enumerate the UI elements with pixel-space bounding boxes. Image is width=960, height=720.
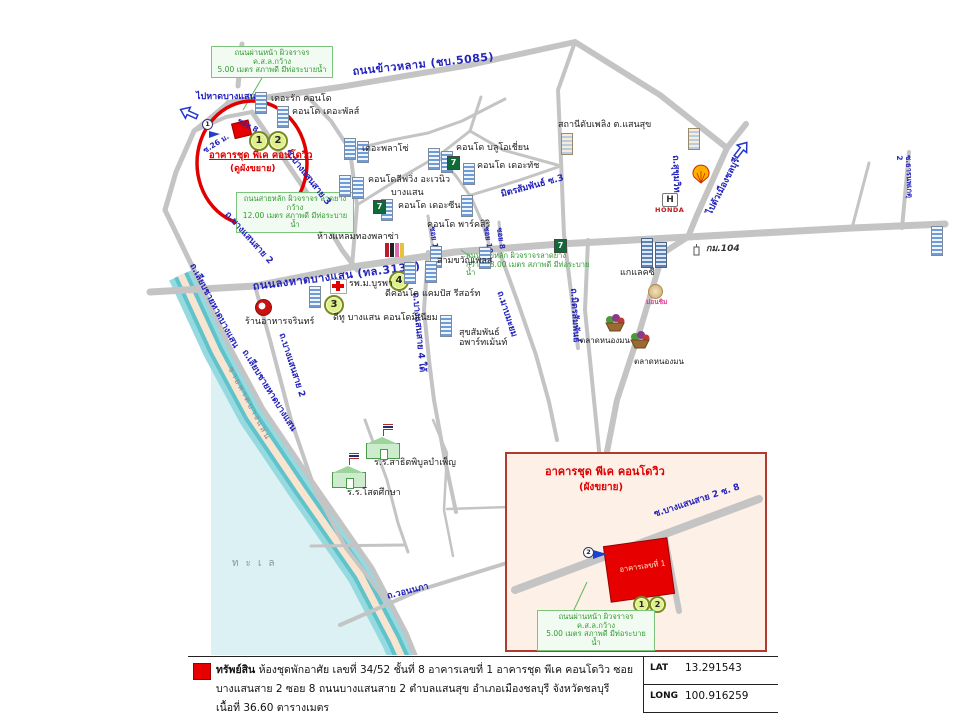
place-blue-ocean: คอนโด บลูโอเชี่ยน — [456, 143, 529, 153]
photo-marker-1: 1 — [249, 131, 269, 151]
sea-label: ทะเล — [232, 558, 282, 570]
honda-logo-icon: H — [662, 193, 678, 207]
condo-tower-icon — [344, 138, 356, 160]
place-galaxy: แกแลคซี — [620, 268, 655, 278]
galaxy-tower-icon — [655, 242, 667, 268]
place-the-zen: คอนโด เดอะซีน — [398, 201, 461, 211]
seven-eleven-icon: 7 — [373, 200, 386, 214]
apartment-icon — [440, 315, 452, 337]
inset-subtitle: (ผังขยาย) — [579, 482, 623, 494]
galaxy-tower-icon — [641, 238, 653, 268]
place-jarin: ร้านอาหารจรินทร์ — [245, 317, 314, 327]
road-label-sukhumvit: ถ.สุขุมวิท — [670, 155, 682, 193]
condo-tower-icon — [428, 148, 440, 170]
place-nong-mon-2: ตลาดหนองมน — [634, 357, 684, 366]
photo-marker-2: 2 — [268, 131, 288, 151]
condo-tower-icon — [309, 286, 321, 308]
inset-title: อาคารชุด พีเค คอนโดวิว — [545, 466, 665, 479]
place-hospital: รพ.ม.บูรพา — [349, 279, 393, 289]
place-the-rak: เดอะรัก คอนโด — [271, 94, 332, 104]
arrow-to-beach-icon — [178, 104, 199, 122]
lat-value: 13.291543 — [685, 662, 742, 674]
thai-flag-icon — [383, 424, 393, 430]
laem-thong-mall-icon — [385, 243, 404, 257]
school-house-icon — [332, 472, 366, 488]
camera-point-2: 2 — [583, 547, 594, 558]
highlight-title: อาคารชุด พีเค คอนโดวิว — [209, 151, 312, 162]
place-d2-bangsaen: ดีทู บางแสน คอนโดมิเนียม — [333, 313, 438, 323]
condo-tower-icon — [425, 261, 437, 283]
place-sam-kwan: สามขวัญเพลส — [437, 256, 492, 266]
condo-tower-icon — [404, 262, 416, 284]
fire-station-building-icon — [561, 133, 573, 155]
fruit-basket-icon — [629, 331, 651, 349]
legend-property-swatch — [193, 663, 211, 680]
place-sot-school: ร.ร.โสตศึกษา — [347, 488, 401, 498]
jarin-restaurant-logo-icon — [255, 299, 272, 316]
place-suk-samphan: สุขสัมพันธ์ อพาร์ทเม้นท์ — [459, 328, 507, 349]
highlight-subtitle: (ดูผังขยาย) — [230, 164, 276, 174]
legend-text: ทรัพย์สิน ห้องชุดพักอาศัย เลขที่ 34/52 ช… — [216, 661, 636, 718]
place-the-pulse: คอนโด เดอะพัลส์ — [292, 107, 359, 117]
place-living-avenue: คอนโดลีฟวิ่ง อะเวนิว — [368, 175, 450, 185]
building-icon — [931, 226, 943, 256]
inset-enlarged-plan: อาคารชุด พีเค คอนโดวิว (ผังขยาย) ซ.บางแส… — [505, 452, 767, 652]
place-mon-chim: ม่อนชิม — [646, 299, 667, 306]
place-park-siri: คอนโด พาร์คสิริ — [427, 220, 490, 230]
photo-marker-3: 3 — [324, 295, 344, 315]
condo-tower-icon — [339, 175, 351, 197]
long-label: LONG — [650, 691, 678, 701]
km-milestone-icon — [694, 244, 699, 255]
condo-tower-icon — [461, 195, 473, 217]
road-label-to-beach: ไปหาดบางแสน — [196, 92, 256, 102]
shell-station-icon — [693, 165, 709, 183]
legend: ทรัพย์สิน ห้องชุดพักอาศัย เลขที่ 34/52 ช… — [0, 655, 960, 720]
condo-tower-icon — [352, 177, 364, 199]
note-front-road: ถนนผ่านหน้า ผิวจราจร ค.ส.ล.กว้าง 5.00 เม… — [211, 46, 333, 78]
building-icon — [688, 128, 700, 150]
place-the-plazo: เดอะพลาโซ่ — [362, 144, 409, 154]
property-location-map: ถนนผ่านหน้า ผิวจราจร ค.ส.ล.กว้าง 5.00 เม… — [0, 0, 960, 720]
road-label-than-nop-ket: ซ.ธารนพเกตุ 2 — [895, 155, 914, 204]
school-house-icon — [366, 443, 400, 459]
seven-eleven-icon: 7 — [447, 156, 460, 170]
seven-eleven-icon: 7 — [554, 239, 567, 253]
place-laem-thong: ห้างแหลมทองพลาซ่า — [317, 232, 399, 242]
note-main-road-12m: ถนนสายหลัก ผิวจราจร ลาดยาง กว้าง 12.00 เ… — [236, 192, 354, 233]
thai-flag-icon — [349, 453, 359, 459]
place-dcondo: ดีคอนโด แคมปัส รีสอร์ท — [385, 289, 480, 299]
inset-note-front-road: ถนนผ่านหน้า ผิวจราจร ค.ส.ล.กว้าง 5.00 เม… — [537, 610, 655, 651]
hospital-cross-icon — [330, 279, 347, 294]
place-satit-school: ร.ร.สาธิตพิบูลบำเพ็ญ — [374, 458, 456, 468]
fruit-basket-icon — [604, 314, 626, 332]
honda-label: HONDA — [655, 207, 684, 214]
km104-label: กม.104 — [706, 244, 740, 254]
place-nong-mon-1: ตลาดหนองมน — [580, 336, 630, 345]
long-value: 100.916259 — [685, 690, 748, 702]
condo-tower-icon — [463, 163, 475, 185]
legend-label: ทรัพย์สิน — [216, 664, 255, 676]
lat-label: LAT — [650, 663, 668, 673]
place-fire-station: สถานีดับเพลิง ต.แสนสุข — [558, 120, 651, 130]
place-the-touch: คอนโด เดอะทัช — [477, 161, 539, 171]
place-living-avenue-2: บางแสน — [391, 188, 424, 198]
condo-tower-icon — [277, 106, 289, 128]
road-label-soi8: ซอย 8 — [494, 227, 506, 250]
map-canvas — [0, 0, 960, 720]
shop-medal-icon — [648, 284, 663, 299]
condo-tower-icon — [255, 92, 267, 114]
camera-point-1: 1 — [202, 119, 213, 130]
